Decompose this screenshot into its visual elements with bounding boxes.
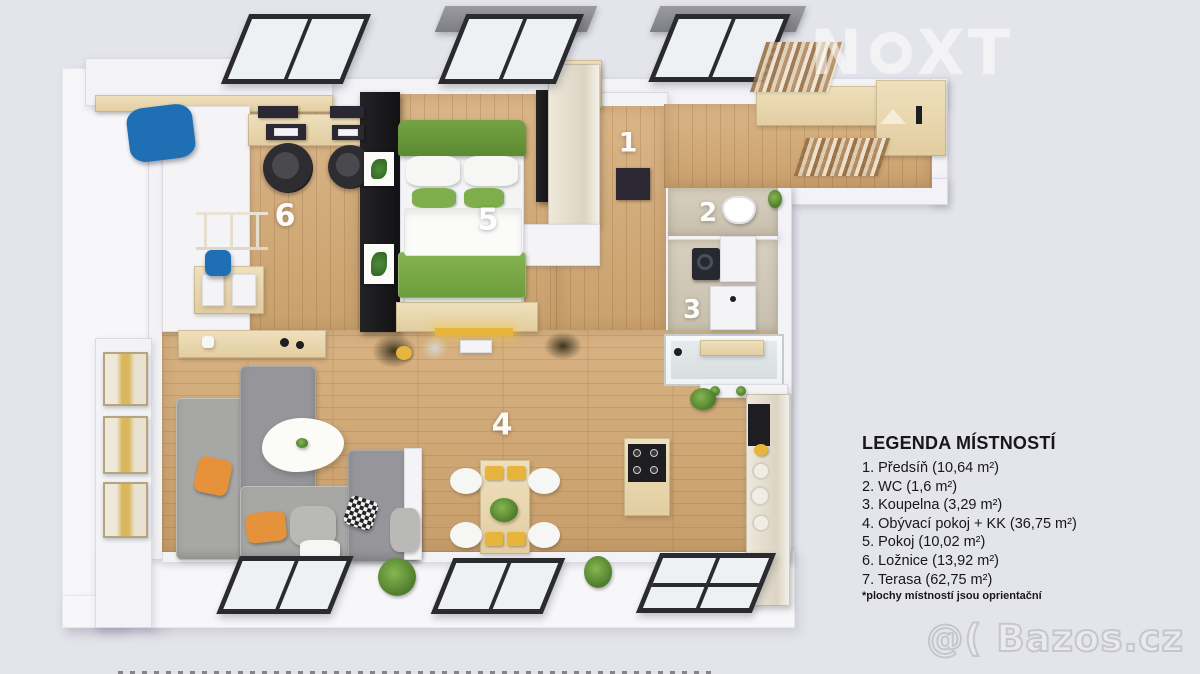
placemat bbox=[507, 532, 525, 546]
hanging-chair-cushion bbox=[125, 102, 197, 164]
bed-duvet bbox=[404, 208, 522, 256]
corner-cabinet bbox=[518, 224, 600, 266]
bed-pillow bbox=[406, 156, 460, 186]
sink-vanity bbox=[710, 286, 756, 330]
room-label-wc: 2 bbox=[699, 198, 717, 228]
bath-cabinet bbox=[720, 236, 756, 282]
vase bbox=[202, 336, 214, 348]
legend-item: 1. Předsíň (10,64 m²) bbox=[862, 459, 1107, 478]
terrace-plant bbox=[584, 556, 612, 588]
washing-machine bbox=[692, 248, 720, 280]
brand-letters-xt: XT bbox=[917, 22, 1013, 84]
wall-art-frame bbox=[103, 352, 148, 406]
dining-chair bbox=[528, 468, 560, 494]
toilet bbox=[722, 196, 756, 224]
legend-item: 7. Terasa (62,75 m²) bbox=[862, 571, 1107, 590]
burner bbox=[633, 449, 641, 457]
bowl-orange bbox=[754, 444, 768, 456]
next-logo-watermark: N XT bbox=[810, 22, 1013, 84]
window-top-1 bbox=[221, 14, 371, 84]
shelf-slot bbox=[202, 274, 224, 306]
room-label-obyvaci-pokoj: 4 bbox=[492, 408, 513, 443]
shower-head-icon bbox=[674, 348, 682, 356]
decor-item bbox=[296, 341, 304, 349]
oven bbox=[748, 404, 770, 446]
faucet bbox=[730, 296, 736, 302]
monitor bbox=[330, 106, 364, 118]
plant-art-card bbox=[364, 152, 394, 186]
plant-small bbox=[768, 190, 782, 208]
wall-art-frame bbox=[103, 416, 148, 474]
office-chair bbox=[263, 143, 313, 193]
legend-item: 2. WC (1,6 m²) bbox=[862, 478, 1107, 497]
terrace-window-3 bbox=[636, 553, 776, 613]
plates-stack bbox=[752, 514, 770, 532]
dried-plant bbox=[544, 332, 582, 360]
legend-item: 5. Pokoj (10,02 m²) bbox=[862, 533, 1107, 552]
room-label-loznice: 6 bbox=[275, 199, 296, 234]
wardrobe-black bbox=[360, 92, 400, 332]
wall-art-frame bbox=[103, 482, 148, 538]
pillow-gray bbox=[390, 508, 420, 552]
keyboard bbox=[274, 128, 298, 136]
dining-chair bbox=[528, 522, 560, 548]
plant-art-card bbox=[364, 244, 394, 284]
brand-arrow-circle-icon bbox=[870, 32, 912, 74]
plates-stack bbox=[752, 462, 770, 480]
wall-socket-panel bbox=[460, 340, 492, 353]
placemat bbox=[485, 532, 503, 546]
terrace-window-1 bbox=[216, 556, 353, 614]
placemat bbox=[485, 466, 503, 480]
bazos-watermark: @( Bazos.cz bbox=[927, 617, 1184, 660]
burner bbox=[650, 449, 658, 457]
floorplan-render: 1 2 3 4 5 6 LEGENDA MÍSTNOSTÍ 1. Předsíň… bbox=[0, 0, 1200, 674]
legend: LEGENDA MÍSTNOSTÍ 1. Předsíň (10,64 m²) … bbox=[862, 433, 1107, 602]
entry-door-handle bbox=[916, 106, 922, 124]
legend-item: 6. Ložnice (13,92 m²) bbox=[862, 552, 1107, 571]
loft-bed-cushion bbox=[205, 250, 231, 276]
decor-item bbox=[280, 338, 289, 347]
bed-headboard bbox=[398, 120, 526, 156]
terrace-plant bbox=[378, 558, 416, 596]
legend-footnote: *plochy místností jsou oprientační bbox=[862, 590, 1107, 602]
dining-chair bbox=[450, 468, 482, 494]
placemat bbox=[507, 466, 525, 480]
bed-pillow bbox=[464, 156, 518, 186]
burner bbox=[633, 466, 641, 474]
floor-plant bbox=[690, 388, 716, 410]
loft-bed-railing bbox=[196, 212, 268, 250]
room-label-koupelna: 3 bbox=[683, 295, 701, 325]
monitor bbox=[258, 106, 298, 118]
kitchen-backsplash bbox=[794, 138, 890, 176]
shelf-slot bbox=[232, 274, 256, 306]
led-light-strip bbox=[435, 328, 513, 336]
console-table bbox=[616, 168, 650, 200]
wardrobe-wood bbox=[548, 64, 600, 226]
pampas-plant bbox=[422, 336, 448, 360]
terrace-window-2 bbox=[431, 558, 566, 614]
bed-blanket bbox=[398, 252, 526, 298]
keyboard bbox=[338, 129, 358, 136]
brand-letter-n: N bbox=[810, 22, 865, 84]
burner bbox=[650, 466, 658, 474]
shoe-bench bbox=[700, 340, 764, 356]
room-label-pokoj: 5 bbox=[478, 203, 499, 238]
table-decor bbox=[296, 438, 308, 448]
plates-stack bbox=[750, 486, 770, 506]
pillow-orange bbox=[245, 510, 288, 544]
herb-pot bbox=[736, 386, 746, 396]
room-label-predsin: 1 bbox=[619, 128, 638, 159]
bed-pillow-green bbox=[412, 188, 456, 208]
legend-item: 4. Obývací pokoj + KK (36,75 m²) bbox=[862, 515, 1107, 534]
dining-chair bbox=[450, 522, 482, 548]
table-centerpiece bbox=[490, 498, 518, 522]
legend-item: 3. Koupelna (3,29 m²) bbox=[862, 496, 1107, 515]
flower-pot-yellow bbox=[396, 346, 412, 360]
legend-title: LEGENDA MÍSTNOSTÍ bbox=[862, 433, 1107, 454]
